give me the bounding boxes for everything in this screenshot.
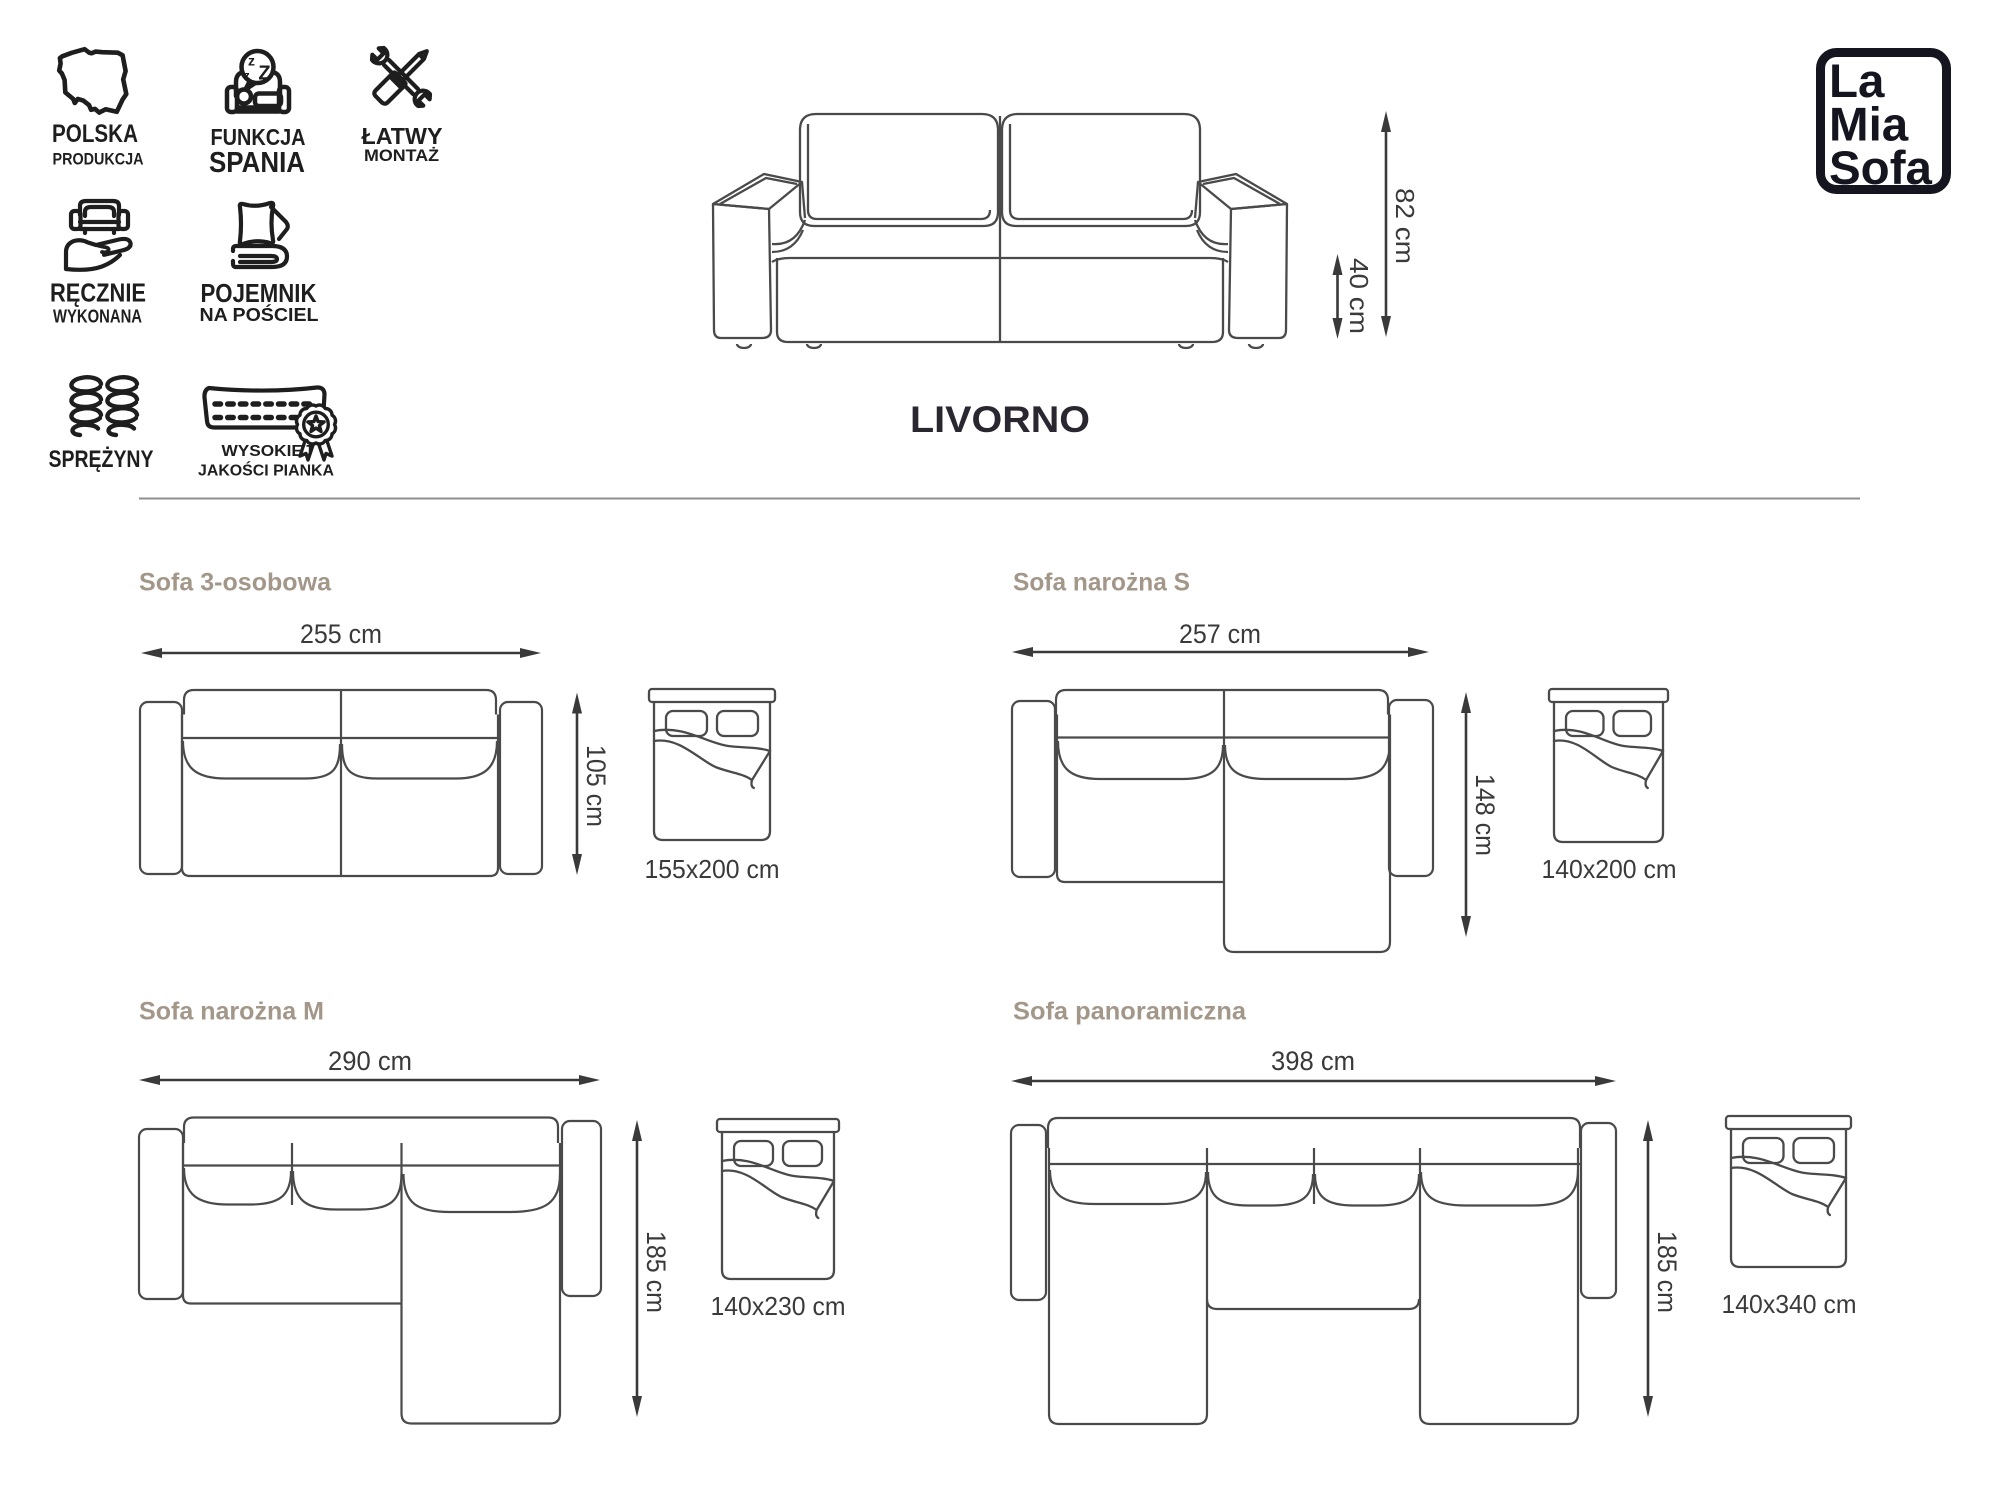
svg-text:155x200 cm: 155x200 cm [645,854,780,884]
svg-text:Sofa: Sofa [1829,142,1933,195]
svg-text:140x340 cm: 140x340 cm [1722,1289,1857,1319]
svg-text:PRODUKCJA: PRODUKCJA [53,150,144,169]
svg-text:WYSOKIEJ: WYSOKIEJ [222,443,313,460]
svg-text:257 cm: 257 cm [1179,619,1261,649]
svg-text:z: z [248,53,255,69]
svg-text:Sofa 3-osobowa: Sofa 3-osobowa [139,569,332,597]
svg-text:Sofa panoramiczna: Sofa panoramiczna [1013,998,1247,1026]
svg-text:POJEMNIK: POJEMNIK [201,278,317,308]
svg-text:JAKOŚCI PIANKA: JAKOŚCI PIANKA [198,461,334,480]
svg-text:Sofa narożna M: Sofa narożna M [139,998,324,1026]
svg-text:Sofa narożna S: Sofa narożna S [1013,569,1190,597]
svg-text:SPANIA: SPANIA [209,147,305,179]
svg-text:NA POŚCIEL: NA POŚCIEL [200,304,319,325]
svg-text:82 cm: 82 cm [1390,188,1420,264]
svg-text:RĘCZNIE: RĘCZNIE [50,278,146,308]
svg-text:40 cm: 40 cm [1344,258,1374,334]
svg-text:290 cm: 290 cm [328,1046,412,1076]
svg-text:398 cm: 398 cm [1271,1046,1355,1076]
svg-text:POLSKA: POLSKA [52,120,138,148]
svg-text:ŁATWY: ŁATWY [362,123,443,149]
svg-text:148 cm: 148 cm [1470,774,1500,856]
svg-text:185 cm: 185 cm [1652,1231,1682,1313]
svg-text:MONTAŻ: MONTAŻ [364,147,439,165]
svg-text:185 cm: 185 cm [641,1231,671,1313]
svg-text:255 cm: 255 cm [300,619,382,649]
svg-text:WYKONANA: WYKONANA [53,307,142,327]
svg-text:140x200 cm: 140x200 cm [1542,854,1677,884]
svg-text:105 cm: 105 cm [581,745,611,827]
svg-text:SPRĘŻYNY: SPRĘŻYNY [49,446,154,473]
svg-text:z: z [244,70,250,82]
svg-text:140x230 cm: 140x230 cm [711,1291,846,1321]
svg-text:LIVORNO: LIVORNO [910,399,1090,440]
svg-text:Z: Z [258,63,270,85]
